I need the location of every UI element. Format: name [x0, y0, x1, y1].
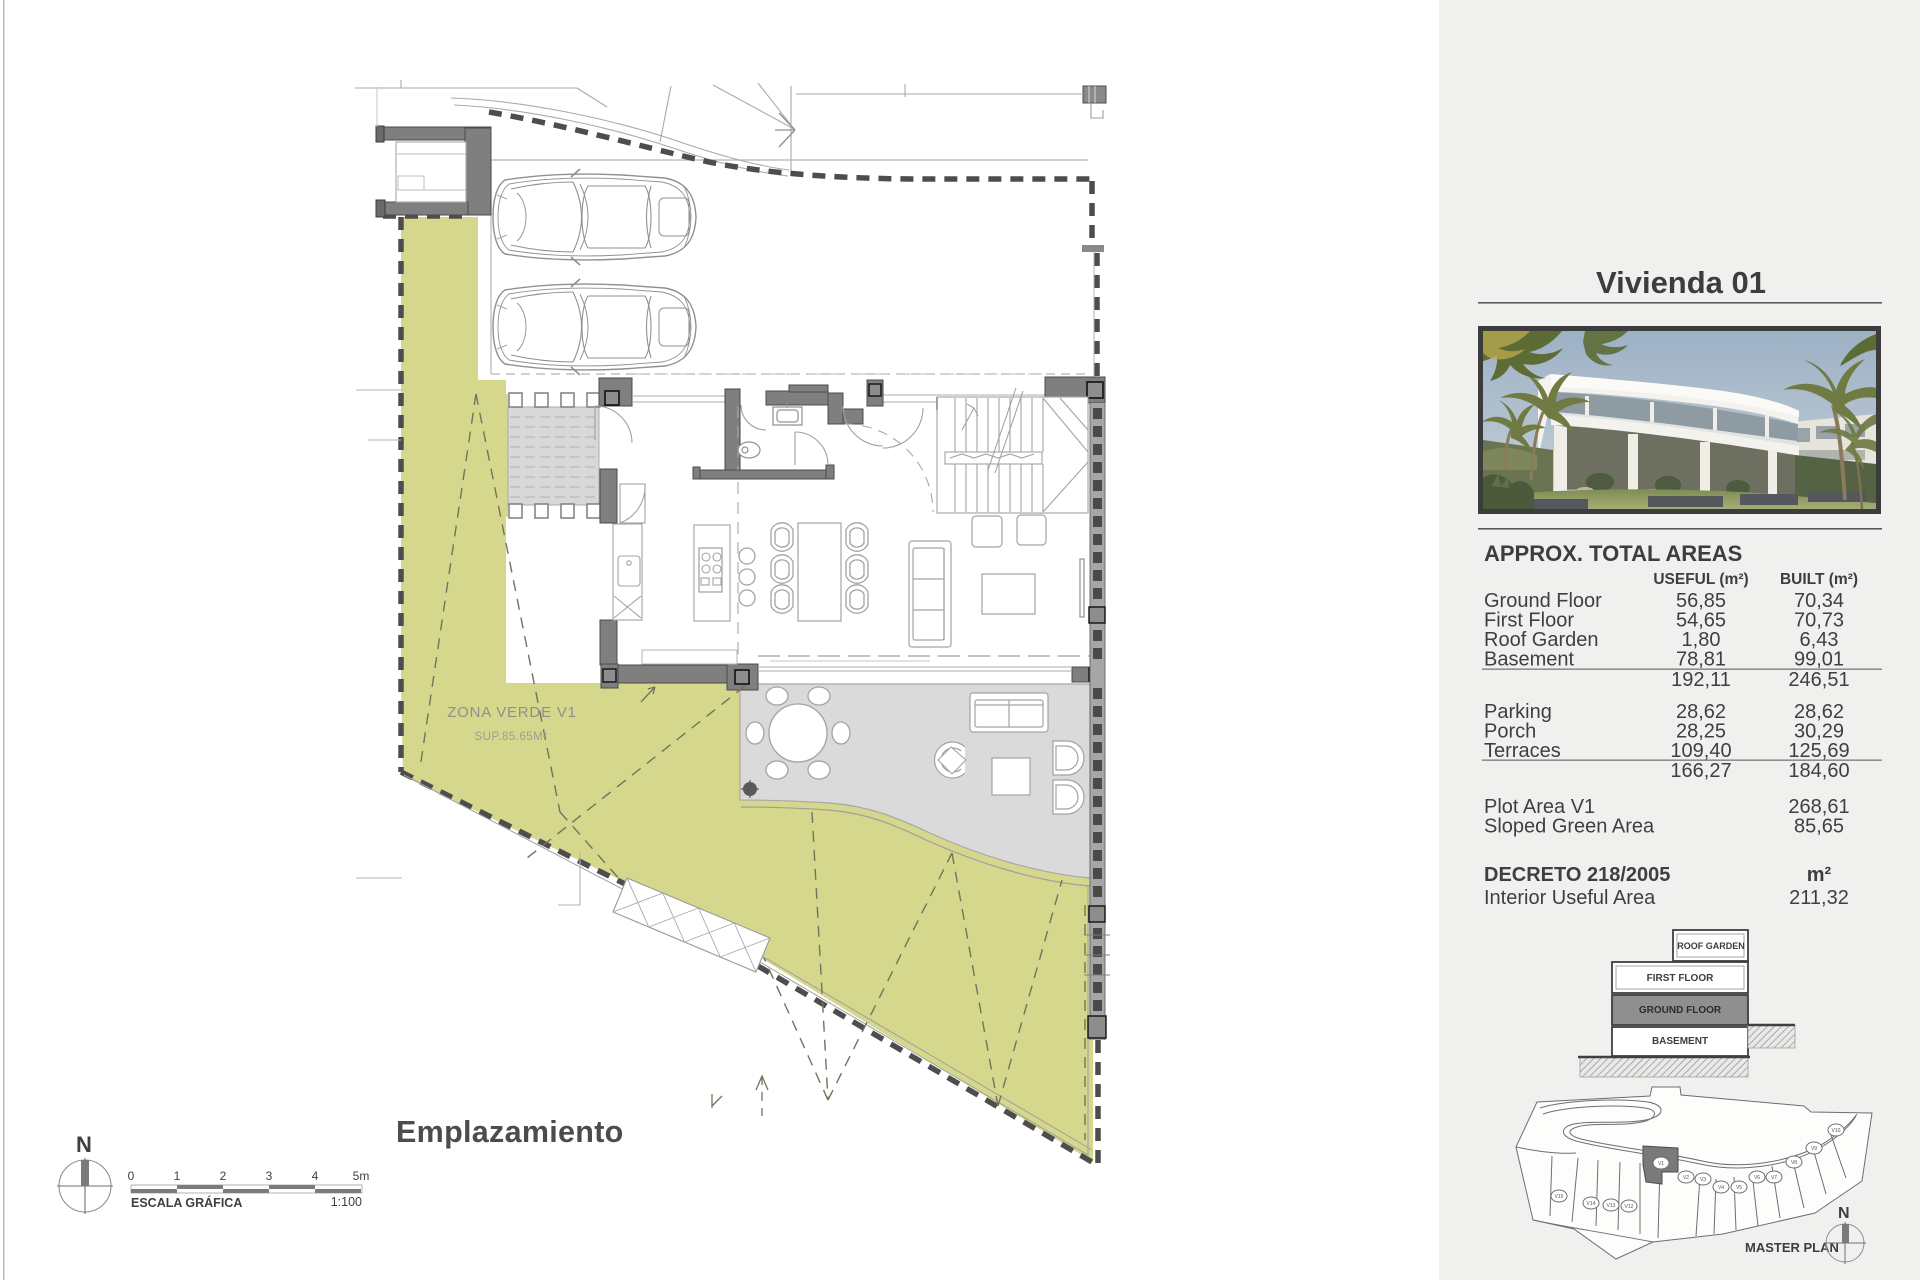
svg-text:109,40: 109,40 — [1670, 740, 1731, 762]
svg-text:V14: V14 — [1587, 1201, 1596, 1207]
svg-text:FIRST FLOOR: FIRST FLOOR — [1647, 973, 1714, 984]
svg-text:Basement: Basement — [1484, 649, 1574, 671]
svg-text:ESCALA GRÁFICA: ESCALA GRÁFICA — [131, 1195, 242, 1210]
svg-text:5m: 5m — [353, 1169, 370, 1183]
svg-text:V9: V9 — [1811, 1146, 1817, 1152]
svg-text:184,60: 184,60 — [1788, 760, 1849, 782]
svg-text:V1: V1 — [1658, 1161, 1664, 1167]
svg-text:V13: V13 — [1607, 1203, 1616, 1209]
svg-text:V5: V5 — [1736, 1185, 1742, 1191]
svg-text:Interior Useful Area: Interior Useful Area — [1484, 887, 1656, 909]
svg-text:125,69: 125,69 — [1788, 740, 1849, 762]
svg-text:Sloped Green Area: Sloped Green Area — [1484, 816, 1655, 838]
svg-text:N: N — [76, 1132, 92, 1157]
svg-text:1: 1 — [174, 1169, 181, 1183]
svg-text:166,27: 166,27 — [1670, 760, 1731, 782]
svg-text:85,65: 85,65 — [1794, 816, 1844, 838]
svg-text:211,32: 211,32 — [1789, 887, 1849, 909]
svg-text:V6: V6 — [1754, 1175, 1760, 1181]
svg-text:GROUND FLOOR: GROUND FLOOR — [1639, 1005, 1722, 1016]
svg-text:APPROX. TOTAL AREAS: APPROX. TOTAL AREAS — [1484, 541, 1742, 566]
svg-text:246,51: 246,51 — [1788, 669, 1849, 691]
svg-text:0: 0 — [128, 1169, 135, 1183]
svg-text:MASTER PLAN: MASTER PLAN — [1745, 1240, 1839, 1255]
svg-text:V3: V3 — [1700, 1177, 1706, 1183]
svg-text:Terraces: Terraces — [1484, 740, 1561, 762]
svg-text:78,81: 78,81 — [1676, 649, 1726, 671]
svg-text:ROOF GARDEN: ROOF GARDEN — [1677, 941, 1745, 951]
svg-text:192,11: 192,11 — [1671, 669, 1731, 691]
svg-text:USEFUL (m²): USEFUL (m²) — [1653, 571, 1748, 588]
svg-text:BUILT (m²): BUILT (m²) — [1780, 571, 1858, 588]
svg-text:N: N — [1838, 1205, 1850, 1222]
svg-text:2: 2 — [220, 1169, 227, 1183]
svg-text:BASEMENT: BASEMENT — [1652, 1036, 1708, 1047]
svg-text:V2: V2 — [1683, 1175, 1689, 1181]
svg-text:3: 3 — [266, 1169, 273, 1183]
svg-text:V10: V10 — [1832, 1128, 1841, 1134]
svg-text:V12: V12 — [1625, 1204, 1634, 1210]
svg-text:99,01: 99,01 — [1794, 649, 1844, 671]
svg-text:V4: V4 — [1718, 1185, 1724, 1191]
svg-text:1:100: 1:100 — [331, 1195, 362, 1209]
svg-text:ZONA VERDE V1: ZONA VERDE V1 — [447, 704, 577, 721]
svg-text:4: 4 — [312, 1169, 319, 1183]
svg-text:V8: V8 — [1791, 1160, 1797, 1166]
svg-text:V15: V15 — [1555, 1194, 1564, 1200]
svg-text:m²: m² — [1807, 864, 1832, 886]
svg-text:V7: V7 — [1771, 1175, 1777, 1181]
svg-text:Emplazamiento: Emplazamiento — [396, 1115, 624, 1149]
svg-text:SUP.85.65M²: SUP.85.65M² — [474, 731, 547, 743]
svg-text:Vivienda 01: Vivienda 01 — [1596, 265, 1766, 300]
svg-text:DECRETO 218/2005: DECRETO 218/2005 — [1484, 864, 1670, 886]
